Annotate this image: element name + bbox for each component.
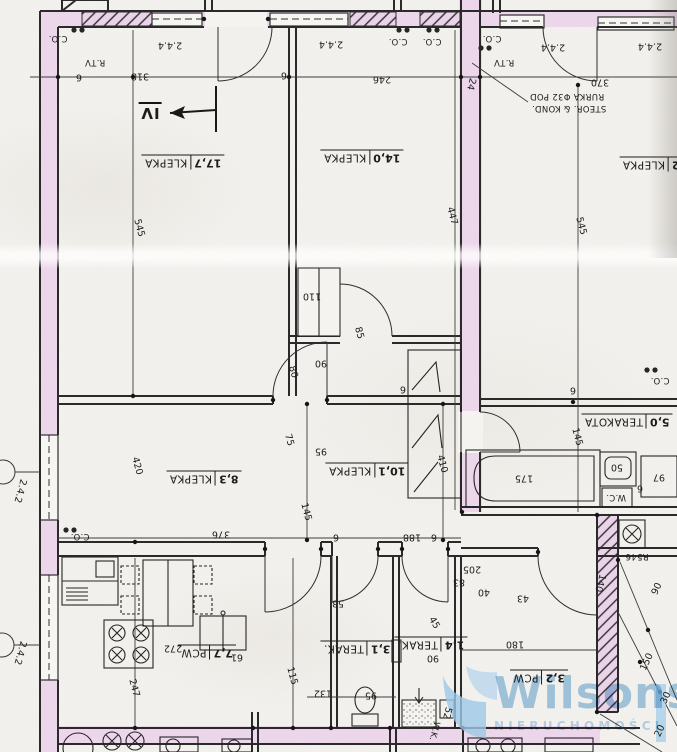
dim-label: 115 (284, 666, 299, 686)
dim-label: 247 (126, 678, 141, 698)
dim-label: 272 (164, 643, 182, 654)
room-label: 17,7KLEPKA (142, 155, 225, 170)
dim-label: 6 (281, 70, 287, 81)
label-layer: 17,7KLEPKA14,0KLEPKA2KLEPKA8,3KLEPKA10,1… (0, 0, 677, 752)
radiator-label: C.O. (71, 531, 90, 541)
dim-label: 2.4.4 (541, 42, 565, 53)
dim-label: 145 (298, 502, 313, 522)
dim-label: 6 (570, 385, 576, 396)
dim-label: 205 (463, 564, 481, 575)
radiator-label: C.O. (651, 375, 670, 385)
dim-label: 2.4.4 (158, 40, 182, 51)
dim-label: 43 (517, 593, 529, 604)
dim-label: 24 (464, 77, 478, 92)
watermark: Wilsons NIERUCHOMOŚCI (494, 672, 677, 733)
dim-label: 145 (569, 427, 584, 447)
wc-label: W.C. (606, 492, 626, 502)
radiator-label: C.O. (389, 36, 408, 46)
dim-label: 2.4.4 (319, 39, 343, 50)
dim-label: 6 (333, 532, 339, 543)
dim-label: 376 (212, 529, 230, 540)
pipe-note-line1: RURKA Φ32 POD (530, 91, 604, 101)
dim-label: 410 (434, 454, 449, 474)
dim-label: 2.4.2 (12, 640, 29, 666)
watermark-tagline: NIERUCHOMOŚCI (494, 719, 677, 733)
room-label: 1,4TERAK. (395, 637, 468, 652)
dim-label: 175 (515, 473, 533, 484)
dim-label: 188 (403, 532, 421, 543)
dim-label: 132 (314, 688, 332, 699)
dim-label: 2.4.4 (638, 41, 662, 52)
room-label: 2KLEPKA (619, 157, 677, 172)
riser-label: R546 (625, 551, 648, 561)
dim-label: 45 (426, 615, 442, 631)
dim-label: 318 (131, 71, 149, 82)
section-marker: IV (138, 102, 161, 122)
radiator-label: C.O. (483, 33, 502, 43)
dim-label: 370 (591, 77, 609, 88)
dim-label: 85 (352, 326, 366, 341)
pipe-note-line2: STEOR. & KOND. (532, 103, 607, 113)
dim-label: 6 (431, 532, 437, 543)
tv-outlet-label: R.TV (85, 57, 106, 67)
dim-label: 545 (131, 218, 146, 238)
dim-label: 180 (506, 639, 524, 650)
wk-label: W.K. (427, 720, 442, 742)
room-label: 5,0TERAKOTA (582, 414, 673, 429)
radiator-label: C.O. (49, 33, 68, 43)
dim-label: 95 (365, 690, 377, 701)
dim-label: 90 (649, 581, 664, 597)
dim-label: 140 (592, 573, 607, 593)
watermark-brand: Wilsons (494, 672, 677, 716)
dim-label: 90 (427, 653, 439, 664)
dim-label: 2.4.2 (12, 478, 29, 504)
dim-label: 420 (129, 456, 144, 476)
dim-label: 6 (76, 72, 82, 83)
dim-label: 61 (231, 652, 243, 663)
dim-label: 246 (373, 74, 391, 85)
dim-label: 6 (637, 483, 643, 494)
room-label: 14,0KLEPKA (321, 150, 404, 165)
room-label: 7,7PCW (178, 645, 236, 660)
tv-outlet-label: R.TV (494, 57, 515, 67)
floor-plan-scan: 17,7KLEPKA14,0KLEPKA2KLEPKA8,3KLEPKA10,1… (0, 0, 677, 752)
dim-label: 110 (303, 291, 321, 302)
dim-label: 447 (444, 206, 459, 226)
dim-label: 83 (453, 577, 465, 588)
dim-label: 50 (611, 462, 623, 473)
room-label: 3,1TERAK. (321, 641, 394, 656)
dim-label: 95 (315, 446, 327, 457)
dim-label: 97 (653, 472, 665, 483)
radiator-label: C.O. (423, 36, 442, 46)
room-label: 10,1KLEPKA (326, 463, 409, 478)
dim-label: 90 (315, 358, 327, 369)
dim-label: 80 (286, 365, 300, 380)
dim-label: 6 (400, 384, 406, 395)
dim-label: 53 (332, 598, 344, 609)
dim-label: 40 (478, 587, 490, 598)
dim-label: 52 (440, 706, 454, 721)
dim-label: 545 (573, 216, 588, 236)
dim-label: 75 (282, 433, 296, 448)
room-label: 8,3KLEPKA (166, 471, 241, 486)
